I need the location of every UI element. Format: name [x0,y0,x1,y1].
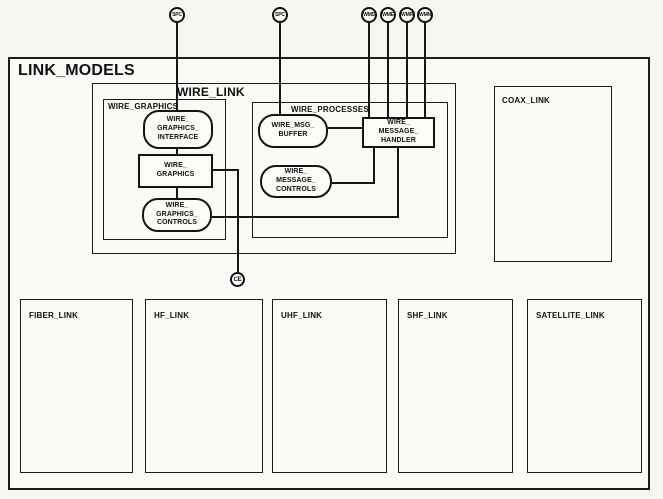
wire-graphics-to-ce-v [237,169,239,273]
node-wire-msg-buffer-label: WIRE_MSG_ BUFFER [272,122,315,140]
node-wire-graphics-interface-label: WIRE_ GRAPHICS_ INTERFACE [157,116,199,142]
port-wmn[interactable]: WMN [417,7,433,23]
wire-buffer-to-handler [328,127,362,129]
node-wire-message-handler[interactable]: WIRE_ MESSAGE_ HANDLER [362,117,435,148]
container-link-models-label: LINK_MODELS [18,62,135,80]
wire-handler-to-graphics-controls-v [397,147,399,218]
port-wme-label: WME [382,13,394,18]
node-wire-graphics[interactable]: WIRE_ GRAPHICS [138,154,213,188]
wire-graphics-to-ce-h [213,169,239,171]
wire-wms-to-message-handler [368,23,370,118]
port-wmr-label: WMR [401,13,413,18]
container-uhf-link-label: UHF_LINK [281,311,322,320]
port-ce[interactable]: CE [230,272,245,287]
wire-spc1-to-graphics-interface [176,23,178,111]
port-spc-1[interactable]: SPC [169,7,185,23]
node-wire-graphics-label: WIRE_ GRAPHICS [157,162,195,180]
wire-spc2-to-msg-buffer [279,23,281,115]
node-wire-msg-buffer[interactable]: WIRE_MSG_ BUFFER [258,114,328,148]
wire-message-controls-to-handler-h [332,182,375,184]
port-wms-label: WMS [363,13,375,18]
container-wire-processes-label: WIRE_PROCESSES [291,105,369,114]
diagram-canvas: LINK_MODELS WIRE_LINK WIRE_GRAPHICS WIRE… [0,0,663,499]
container-fiber-link[interactable]: FIBER_LINK [20,299,133,473]
port-ce-label: CE [234,277,242,283]
container-shf-link-label: SHF_LINK [407,311,448,320]
port-wme[interactable]: WME [380,7,396,23]
container-fiber-link-label: FIBER_LINK [29,311,78,320]
port-wmn-label: WMN [419,13,431,18]
node-wire-message-controls[interactable]: WIRE_ MESSAGE_ CONTROLS [260,165,332,198]
port-spc-2-label: SPC [275,13,285,18]
container-coax-link-label: COAX_LINK [502,96,550,105]
container-satellite-link[interactable]: SATELLITE_LINK [527,299,642,473]
wire-wmr-to-message-handler [406,23,408,118]
node-wire-graphics-controls[interactable]: WIRE_ GRAPHICS_ CONTROLS [142,198,212,232]
node-wire-message-handler-label: WIRE_ MESSAGE_ HANDLER [379,119,419,145]
wire-wme-to-message-handler [387,23,389,118]
container-satellite-link-label: SATELLITE_LINK [536,311,605,320]
port-spc-2[interactable]: SPC [272,7,288,23]
container-coax-link[interactable]: COAX_LINK [494,86,612,262]
wire-message-controls-to-handler-v [373,147,375,184]
port-spc-1-label: SPC [172,13,182,18]
node-wire-graphics-interface[interactable]: WIRE_ GRAPHICS_ INTERFACE [143,110,213,149]
container-shf-link[interactable]: SHF_LINK [398,299,513,473]
container-hf-link[interactable]: HF_LINK [145,299,263,473]
container-wire-link-label: WIRE_LINK [177,85,245,99]
wire-handler-to-graphics-controls-h [212,216,399,218]
container-uhf-link[interactable]: UHF_LINK [272,299,387,473]
port-wms[interactable]: WMS [361,7,377,23]
container-hf-link-label: HF_LINK [154,311,189,320]
wire-wmn-to-message-handler [424,23,426,118]
node-wire-message-controls-label: WIRE_ MESSAGE_ CONTROLS [276,168,316,194]
node-wire-graphics-controls-label: WIRE_ GRAPHICS_ CONTROLS [156,202,198,228]
port-wmr[interactable]: WMR [399,7,415,23]
